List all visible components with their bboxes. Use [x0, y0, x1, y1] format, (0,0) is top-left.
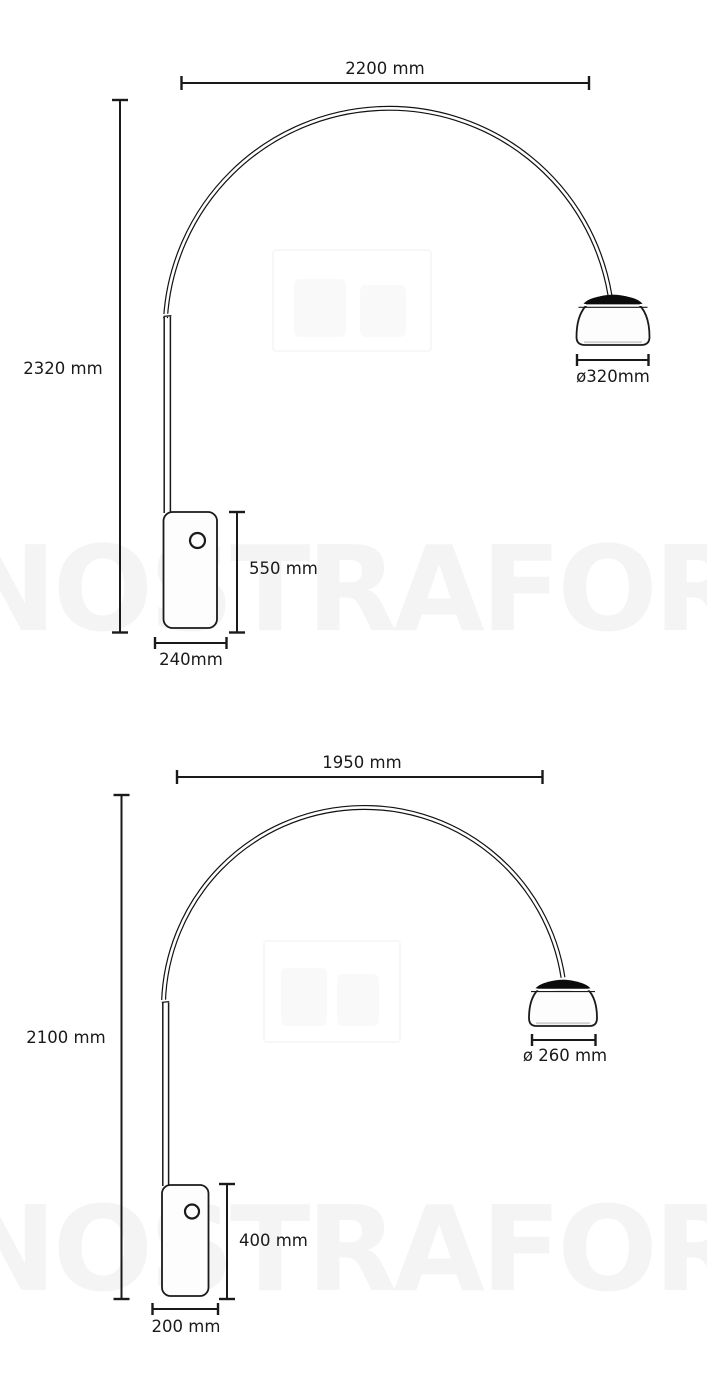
arc-span-dimension: 2200 mm [182, 59, 590, 90]
total-height-label: 2320 mm [23, 359, 102, 378]
base-hole [190, 533, 205, 548]
base-width-dimension: 240mm [155, 637, 227, 669]
base-height-dimension: 400 mm [219, 1184, 308, 1299]
base-height-label: 400 mm [239, 1231, 308, 1250]
shade-diameter-label: ø 260 mm [523, 1046, 607, 1065]
shade-diameter-label: ø320mm [576, 367, 650, 386]
shade-diameter-dimension: ø 260 mm [523, 1034, 607, 1065]
total-height-label: 2100 mm [26, 1028, 105, 1047]
base-width-label: 240mm [159, 650, 223, 669]
arc-span-label: 1950 mm [322, 753, 401, 772]
arc-tube [166, 108, 611, 318]
arc-tube [164, 807, 564, 1002]
shade-cap [584, 295, 643, 306]
total-height-dimension: 2320 mm [23, 100, 128, 633]
base-width-label: 200 mm [152, 1317, 221, 1336]
marble-base [164, 512, 218, 628]
base-width-dimension: 200 mm [152, 1303, 221, 1336]
lamp-diagram-small: 1950 mm 2100 mm [0, 700, 707, 1392]
tube-joint-line [162, 1002, 169, 1003]
base-height-dimension: 550 mm [229, 512, 318, 633]
shade-diameter-dimension: ø320mm [576, 354, 650, 386]
arc-span-dimension: 1950 mm [177, 753, 543, 784]
total-height-dimension: 2100 mm [26, 795, 129, 1299]
lamp-diagram-large: 2200 mm 2320 mm [0, 0, 707, 700]
marble-base [162, 1185, 209, 1296]
spec-sheet: NOSTRAFORMA NOSTRAFORMA 2200 mm 2320 mm [0, 0, 707, 1392]
arc-span-label: 2200 mm [345, 59, 424, 78]
tube-joint-line [164, 316, 172, 317]
arc-tube-highlight [166, 108, 611, 318]
base-height-label: 550 mm [249, 559, 318, 578]
base-hole [185, 1205, 199, 1219]
arc-tube-highlight [164, 807, 564, 1002]
